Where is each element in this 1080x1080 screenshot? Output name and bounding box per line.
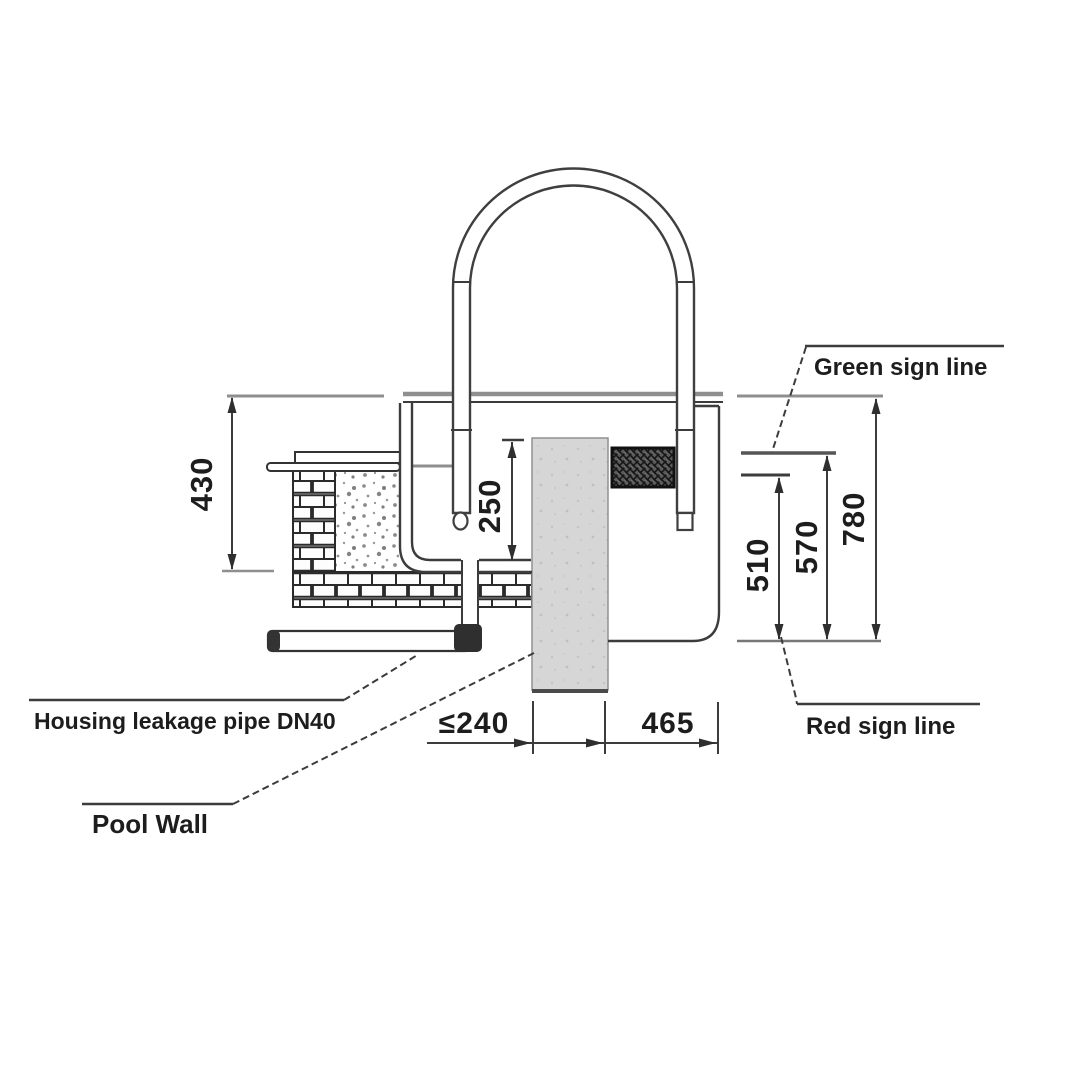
concrete-fill [336, 470, 399, 571]
dim-430-arrow-bottom [228, 554, 237, 570]
drain-pipe-elbow [454, 624, 482, 652]
dimension-780: 780 [836, 398, 881, 640]
dimension-430: 430 [184, 397, 274, 571]
deck-structure [227, 394, 883, 402]
dimension-510: 510 [740, 477, 784, 640]
dim-780-arrow-bottom [872, 624, 881, 640]
anchor-plate [612, 448, 674, 487]
dimension-250: 250 [472, 440, 524, 561]
dim-780-value: 780 [836, 492, 871, 547]
housing-right-cavity-wall [608, 406, 719, 641]
dimension-bottom-row: ≤240 465 [427, 701, 719, 754]
red-label-leader [781, 637, 797, 704]
label-pool-wall: Pool Wall [82, 653, 534, 839]
pool-wall-body [532, 438, 608, 690]
dim-570-arrow-top [823, 455, 832, 471]
drain-pipe-punchout [461, 558, 479, 633]
dim-510-value: 510 [740, 538, 775, 593]
dim-465-value: 465 [641, 707, 694, 740]
dim-250-arrow-top [508, 442, 517, 458]
label-red-sign-line: Red sign line [781, 637, 980, 740]
right-tube-end-cap [678, 513, 693, 530]
red-label-text: Red sign line [806, 713, 955, 740]
pool-wall-label-text: Pool Wall [92, 809, 208, 839]
green-label-leader [772, 347, 806, 452]
left-tube-end-cap [454, 513, 468, 530]
anchor-plate-body [612, 448, 674, 487]
dim-465-arrow-right [699, 739, 716, 748]
green-label-text: Green sign line [814, 354, 987, 381]
label-housing-leakage-pipe: Housing leakage pipe DN40 [29, 654, 419, 734]
dim-570-value: 570 [789, 520, 824, 575]
dim-780-arrow-top [872, 398, 881, 414]
dim-510-arrow-top [775, 477, 784, 493]
brick-column [293, 471, 335, 572]
dimension-570: 570 [789, 455, 832, 640]
dim-465-arrow-left [586, 739, 603, 748]
dim-250-value: 250 [472, 479, 507, 534]
coping-bar [267, 463, 400, 471]
brick-base-course [293, 572, 532, 607]
handrail-installation-diagram: 430 250 510 570 780 ≤240 4 [0, 0, 1080, 1080]
pipe-label-text: Housing leakage pipe DN40 [34, 708, 336, 734]
cap-plate [295, 452, 400, 463]
pool-wall-section [532, 438, 608, 691]
dim-240-arrow [514, 739, 531, 748]
technical-drawing-canvas: 430 250 510 570 780 ≤240 4 [0, 0, 1080, 1080]
label-green-sign-line: Green sign line [772, 346, 1004, 452]
drain-pipe-horizontal [268, 631, 470, 651]
dim-430-value: 430 [184, 457, 219, 512]
dim-570-arrow-bottom [823, 624, 832, 640]
dim-250-arrow-bottom [508, 545, 517, 561]
pipe-label-leader [344, 654, 419, 700]
dim-430-arrow-top [228, 397, 237, 413]
drain-pipe-end-cap [268, 631, 280, 651]
dim-240-value: ≤240 [439, 707, 510, 740]
